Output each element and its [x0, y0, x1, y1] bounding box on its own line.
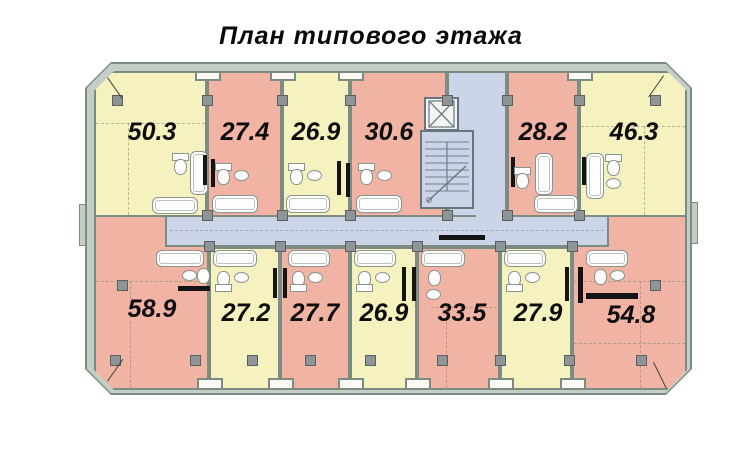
sink-icon [606, 178, 621, 189]
corridor-stair-opening [476, 211, 504, 223]
sink-icon [234, 170, 249, 181]
door-leaf [402, 267, 406, 301]
partition-dashed-line [574, 343, 685, 344]
wall-niche [567, 71, 593, 81]
corridor-door-leaf [439, 235, 485, 240]
door-leaf [273, 268, 277, 298]
wall-niche [197, 378, 223, 390]
door-leaf [337, 161, 341, 195]
column [275, 241, 286, 252]
bathtub-icon [156, 250, 204, 267]
bathtub-icon [586, 153, 604, 199]
column [277, 210, 288, 221]
sink-icon [610, 270, 625, 281]
bathtub-icon [213, 250, 257, 267]
area-label: 30.6 [365, 118, 414, 147]
toilet-icon [594, 269, 607, 285]
area-label: 27.4 [221, 118, 270, 147]
column [277, 95, 288, 106]
column [442, 210, 453, 221]
floor-plan: 50.3 27.4 26.9 30.6 28.2 46.3 58.9 27.2 … [85, 62, 692, 395]
bathtub-icon [586, 250, 628, 267]
column [502, 95, 513, 106]
sink-icon [182, 270, 197, 281]
wall-niche [338, 71, 364, 81]
corridor [165, 215, 609, 247]
area-label: 27.2 [222, 299, 271, 328]
bathtub-icon [421, 250, 465, 267]
wall-niche [560, 378, 586, 390]
door-leaf [203, 155, 207, 185]
area-label: 27.7 [291, 299, 340, 328]
outer-wall: 50.3 27.4 26.9 30.6 28.2 46.3 58.9 27.2 … [87, 64, 690, 393]
page-title: План типового этажа [0, 22, 742, 51]
column [412, 241, 423, 252]
column [650, 95, 661, 106]
column [305, 355, 316, 366]
toilet-icon [356, 284, 373, 292]
wall-niche [338, 378, 364, 390]
sink-icon [307, 170, 322, 181]
toilet-icon [215, 284, 232, 292]
bathtub-icon [152, 197, 198, 214]
bathtub-icon [354, 250, 396, 267]
area-label: 26.9 [292, 118, 341, 147]
column [365, 355, 376, 366]
toilet-icon [290, 284, 307, 292]
bathtub-icon [504, 250, 546, 267]
door-leaf [346, 163, 350, 197]
door-leaf [578, 267, 583, 303]
toilet-icon [290, 169, 303, 185]
area-label: 50.3 [128, 118, 177, 147]
wall-niche [270, 71, 296, 81]
toilet-icon [217, 169, 230, 185]
column [574, 95, 585, 106]
toilet-icon [506, 284, 523, 292]
column [495, 355, 506, 366]
kitchen-counter [178, 286, 210, 291]
area-label: 27.9 [514, 299, 563, 328]
partition-dashed-line [640, 281, 641, 388]
wall-niche [488, 378, 514, 390]
column [345, 241, 356, 252]
door-leaf [412, 267, 416, 301]
column [202, 95, 213, 106]
column [502, 210, 513, 221]
sink-icon [308, 272, 323, 283]
kitchen-counter [586, 293, 638, 299]
sink-icon [377, 170, 392, 181]
stairs-icon [422, 132, 472, 207]
toilet-icon [197, 268, 210, 284]
bathtub-icon [286, 195, 330, 213]
wall-niche [268, 378, 294, 390]
area-label: 46.3 [610, 118, 659, 147]
toilet-icon [174, 159, 187, 175]
column [247, 355, 258, 366]
toilet-icon [607, 160, 620, 176]
door-leaf [565, 267, 569, 301]
toilet-icon [516, 173, 529, 189]
bathtub-icon [534, 195, 578, 213]
corridor-center-dashed-line [170, 230, 604, 231]
column [495, 241, 506, 252]
area-label: 28.2 [519, 118, 568, 147]
column [442, 95, 453, 106]
sink-icon [234, 272, 249, 283]
door-leaf [283, 268, 287, 298]
wall-niche [195, 71, 221, 81]
column [202, 210, 213, 221]
wall-niche [405, 378, 431, 390]
bathtub-icon [288, 250, 330, 267]
bathtub-icon [212, 195, 258, 213]
area-label: 33.5 [438, 299, 487, 328]
bathtub-icon [356, 195, 402, 213]
sink-icon [375, 272, 390, 283]
toilet-icon [428, 270, 441, 286]
column [190, 355, 201, 366]
page: { "title": "План типового этажа", "color… [0, 0, 742, 470]
toilet-icon [360, 169, 373, 185]
column [345, 210, 356, 221]
column [345, 95, 356, 106]
area-label: 54.8 [607, 301, 656, 330]
sink-icon [525, 272, 540, 283]
partition-dashed-line [96, 281, 207, 282]
column [564, 355, 575, 366]
area-label: 26.9 [360, 299, 409, 328]
column [567, 241, 578, 252]
column [636, 355, 647, 366]
floor-plan-interior: 50.3 27.4 26.9 30.6 28.2 46.3 58.9 27.2 … [94, 71, 687, 390]
partition-dashed-line [574, 281, 685, 282]
staircase [420, 130, 474, 209]
area-label: 58.9 [128, 295, 177, 324]
column [204, 241, 215, 252]
bathtub-icon [535, 153, 553, 195]
